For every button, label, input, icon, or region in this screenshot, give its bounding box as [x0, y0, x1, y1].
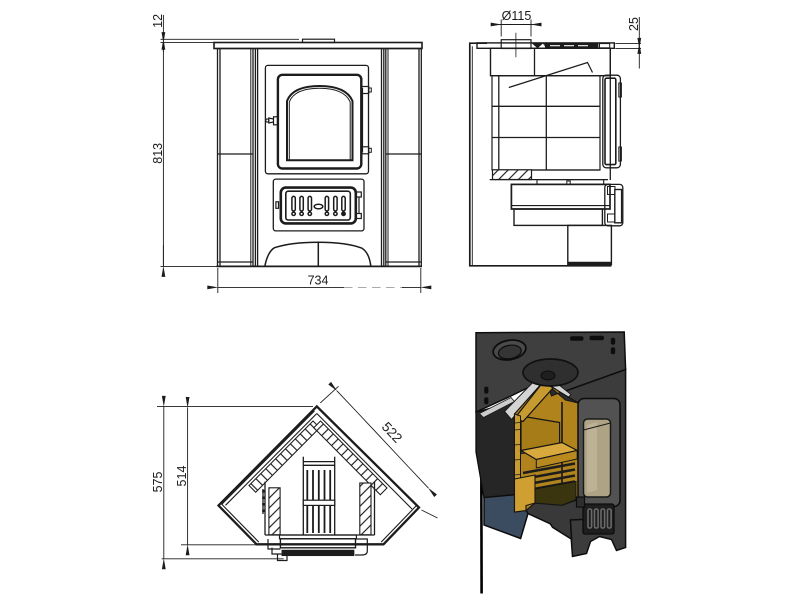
- svg-text:12: 12: [151, 14, 165, 28]
- svg-text:Ø115: Ø115: [502, 9, 532, 23]
- svg-text:522: 522: [379, 419, 405, 446]
- svg-text:575: 575: [151, 472, 165, 493]
- svg-text:734: 734: [308, 274, 329, 288]
- svg-text:25: 25: [627, 17, 641, 31]
- svg-text:813: 813: [151, 143, 165, 164]
- svg-text:514: 514: [175, 466, 189, 487]
